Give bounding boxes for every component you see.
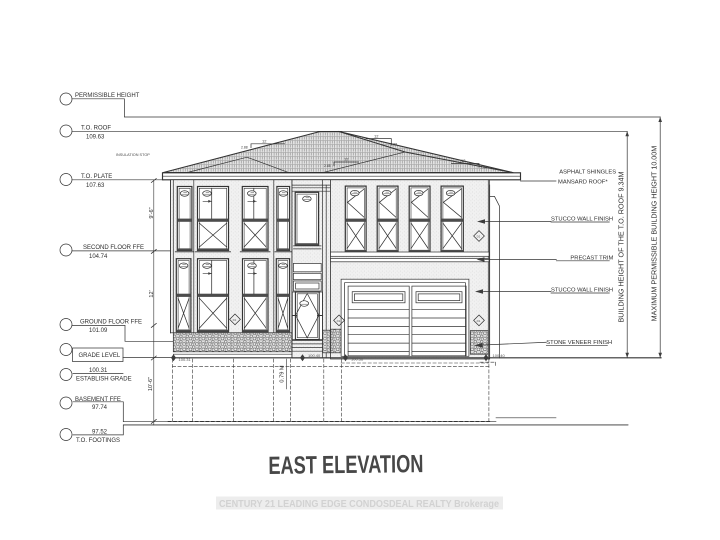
svg-text:2.88: 2.88: [481, 166, 488, 170]
svg-text:PRECAST TRIM: PRECAST TRIM: [570, 255, 613, 261]
svg-text:MAXIMUM PERMISSIBLE BUILDING H: MAXIMUM PERMISSIBLE BUILDING HEIGHT 10.0…: [650, 146, 659, 322]
svg-text:0.79 M: 0.79 M: [280, 365, 286, 382]
svg-text:EAST ELEVATION: EAST ELEVATION: [268, 450, 423, 480]
svg-text:109.63: 109.63: [86, 135, 105, 141]
svg-text:STONE VENEER FINISH: STONE VENEER FINISH: [546, 340, 612, 346]
svg-text:BUILDING HEIGHT OF THE T.O. RO: BUILDING HEIGHT OF THE T.O. ROOF 9.34M: [617, 172, 626, 323]
svg-text:GRADE LEVEL: GRADE LEVEL: [79, 353, 121, 359]
svg-text:D1: D1: [233, 318, 237, 322]
svg-text:2.88: 2.88: [324, 164, 331, 168]
svg-text:ESTABLISH GRADE: ESTABLISH GRADE: [76, 377, 132, 383]
svg-text:PERMISSIBLE HEIGHT: PERMISSIBLE HEIGHT: [75, 93, 140, 99]
svg-text:D1: D1: [337, 319, 341, 323]
svg-text:12': 12': [149, 290, 155, 297]
svg-text:2.88: 2.88: [391, 142, 398, 146]
svg-text:12: 12: [262, 138, 267, 143]
svg-text:GROUND FLOOR FFE: GROUND FLOOR FFE: [80, 320, 142, 326]
svg-text:100.40: 100.40: [308, 353, 321, 358]
svg-text:2.88: 2.88: [241, 146, 248, 150]
svg-text:12: 12: [344, 157, 349, 162]
svg-text:104.74: 104.74: [89, 254, 108, 260]
svg-text:D1: D1: [477, 235, 481, 239]
svg-text:97.74: 97.74: [92, 405, 108, 411]
svg-text:INSULATION STOP: INSULATION STOP: [116, 153, 150, 157]
svg-text:100.38: 100.38: [351, 357, 364, 362]
svg-text:MANSARD ROOF*: MANSARD ROOF*: [558, 180, 608, 186]
svg-text:100.31: 100.31: [179, 357, 192, 362]
svg-text:SECOND FLOOR FFE: SECOND FLOOR FFE: [83, 245, 144, 251]
svg-text:9'-6": 9'-6": [149, 207, 155, 218]
svg-text:107.63: 107.63: [86, 183, 105, 189]
svg-text:T.O. ROOF: T.O. ROOF: [81, 125, 111, 131]
svg-text:T.O. PLATE: T.O. PLATE: [81, 174, 112, 180]
svg-text:CENTURY 21 LEADING EDGE CONDOS: CENTURY 21 LEADING EDGE CONDOSDEAL REALT…: [219, 498, 499, 510]
svg-text:12: 12: [374, 134, 379, 139]
svg-text:97.52: 97.52: [92, 429, 108, 435]
svg-text:STUCCO WALL FINISH: STUCCO WALL FINISH: [551, 216, 613, 222]
svg-text:101.09: 101.09: [89, 328, 108, 334]
svg-text:10'-6": 10'-6": [148, 377, 154, 391]
svg-text:STUCCO WALL FINISH: STUCCO WALL FINISH: [551, 287, 613, 293]
svg-text:ASPHALT SHINGLES: ASPHALT SHINGLES: [559, 169, 616, 175]
svg-text:12: 12: [461, 158, 466, 163]
svg-text:T.O. FOOTINGS: T.O. FOOTINGS: [76, 438, 120, 444]
svg-text:100.40: 100.40: [493, 353, 506, 358]
svg-text:D1: D1: [477, 319, 481, 323]
